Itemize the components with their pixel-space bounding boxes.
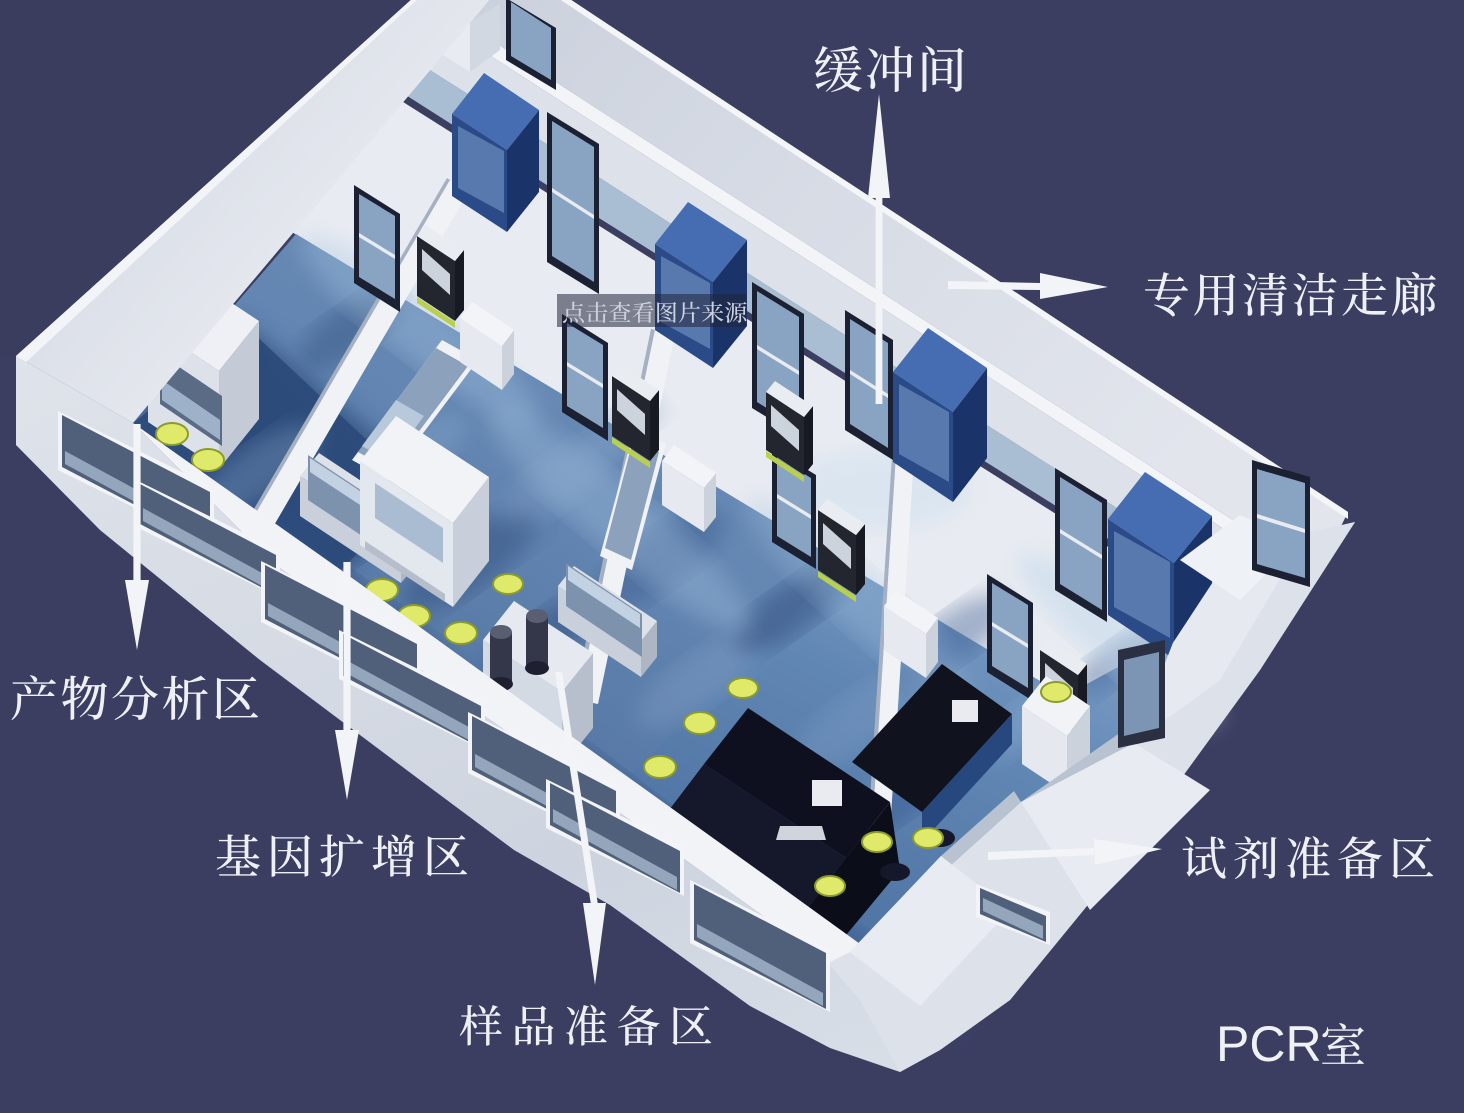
svg-text:PCR: PCR (1216, 1016, 1322, 1072)
